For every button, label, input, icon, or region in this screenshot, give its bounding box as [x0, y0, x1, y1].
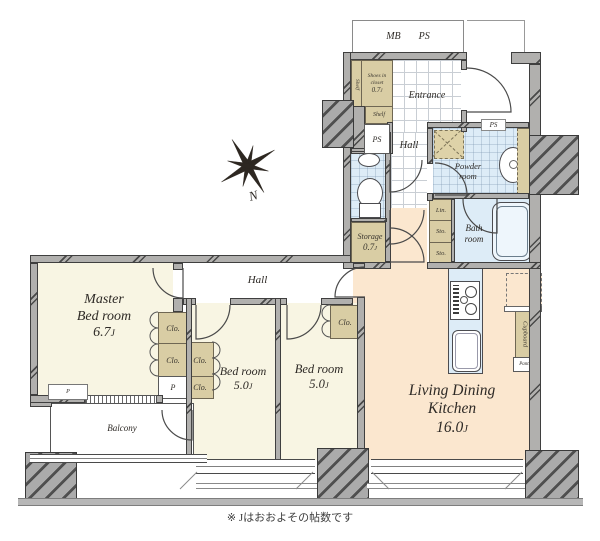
column [322, 100, 354, 148]
stove [450, 281, 480, 320]
hall-lower-label: Hall [200, 274, 315, 287]
wall [343, 52, 351, 262]
bath-room-label: Bathroom [455, 223, 493, 244]
wall [511, 52, 541, 64]
ps-shaft-box: PS [364, 124, 390, 154]
closet-bedroom2: Clo. [330, 305, 360, 339]
wall [351, 218, 387, 222]
mb-ps-alcove: MB PS [352, 20, 464, 54]
bathtub [492, 202, 532, 261]
hall-upper-label: Hall [389, 140, 429, 152]
floor-plan: MB PS Shelf Shoes in closet 0.7J Shelf S… [0, 0, 600, 541]
wall [343, 262, 391, 269]
shoes-closet-line1: Shoes in [368, 73, 387, 80]
window-ldk [371, 459, 523, 474]
wall [173, 263, 183, 270]
column [529, 135, 579, 195]
wall [30, 263, 38, 395]
bedroom2-label: Bed room 5.0J [281, 362, 357, 392]
toilet-hand-basin [358, 153, 380, 167]
door-arc-entrance [467, 68, 511, 112]
wall [427, 262, 541, 269]
wall [186, 298, 192, 460]
linen-closet: Lin. [429, 199, 453, 221]
caption: ※ Jはおおよその帖数です [90, 512, 490, 525]
storage-sto-2: Sto. [429, 242, 453, 264]
wall [343, 52, 467, 60]
column [317, 448, 369, 499]
kitchen-sink-inner [455, 333, 478, 369]
entrance-label: Entrance [392, 90, 462, 102]
wall [357, 297, 365, 460]
wall [461, 110, 467, 132]
window-bedrooms [196, 459, 315, 474]
master-low-window [85, 395, 157, 404]
closet-master-2: Clo. [158, 343, 188, 378]
stove-grill [453, 285, 459, 314]
wall [321, 298, 353, 305]
compass-n-label: N [247, 187, 259, 204]
ps-chip-powder: PS [481, 119, 506, 131]
stove-burner-2 [465, 303, 477, 315]
balcony-label: Balcony [72, 423, 172, 434]
balcony-outer-line [367, 483, 525, 489]
shoes-in-closet: Shoes in closet 0.7J [361, 60, 393, 108]
wall [427, 122, 529, 128]
ps-label-top: PS [419, 31, 430, 43]
toilet-tank [359, 203, 381, 218]
balcony-edge [30, 454, 207, 463]
stove-burner-3 [460, 296, 468, 304]
bathtub-inner [496, 206, 528, 257]
exterior-line-top [467, 20, 524, 21]
mb-label: MB [386, 31, 400, 43]
storage-closet: Storage 0.7J [351, 222, 389, 264]
wall [433, 193, 529, 199]
compass-star [219, 137, 278, 196]
pipe-box-balcony: P [48, 384, 88, 400]
column [525, 450, 579, 499]
wall [353, 263, 365, 268]
powder-room-label: Powderroom [433, 161, 503, 181]
storage-sto-1: Sto. [429, 220, 453, 243]
shoes-closet-line2: closet [368, 80, 387, 87]
storage-label: Storage [358, 232, 383, 242]
ldk-label: Living Dining Kitchen 16.0J [372, 382, 532, 437]
wall [173, 298, 183, 312]
parapet-band [18, 498, 583, 506]
wall [30, 255, 351, 263]
master-bedroom-label: Master Bed room 6.7J [40, 292, 168, 342]
bedroom1-label: Bed room 5.0J [203, 364, 283, 392]
balcony-diag [180, 472, 197, 489]
corridor-floor [391, 208, 427, 266]
wall [461, 60, 467, 70]
kitchen-sink [452, 330, 481, 372]
balcony-outer-line [196, 483, 317, 489]
